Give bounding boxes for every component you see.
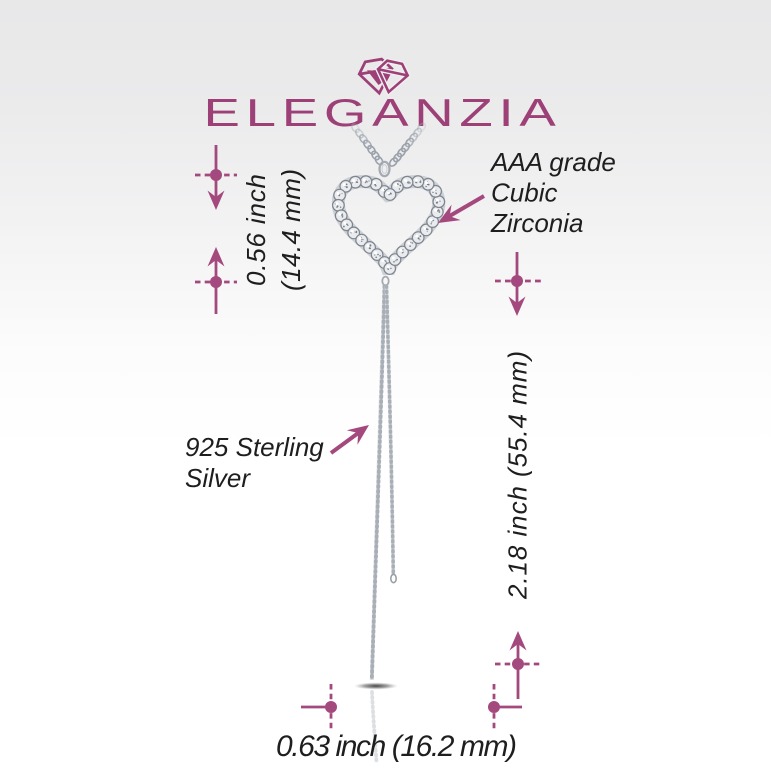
svg-text:925 Sterling: 925 Sterling <box>185 432 324 462</box>
svg-text:Zirconia: Zirconia <box>490 208 583 238</box>
svg-text:2.18 inch (55.4 mm): 2.18 inch (55.4 mm) <box>503 351 533 600</box>
svg-text:Cubic: Cubic <box>491 178 557 208</box>
svg-text:0.56 inch: 0.56 inch <box>241 174 271 286</box>
svg-text:0.63 inch (16.2 mm): 0.63 inch (16.2 mm) <box>276 730 517 763</box>
svg-text:Silver: Silver <box>185 463 251 493</box>
svg-text:ELEGANZIA: ELEGANZIA <box>204 91 562 135</box>
svg-text:AAA grade: AAA grade <box>489 147 616 177</box>
svg-text:(14.4 mm): (14.4 mm) <box>276 169 306 291</box>
